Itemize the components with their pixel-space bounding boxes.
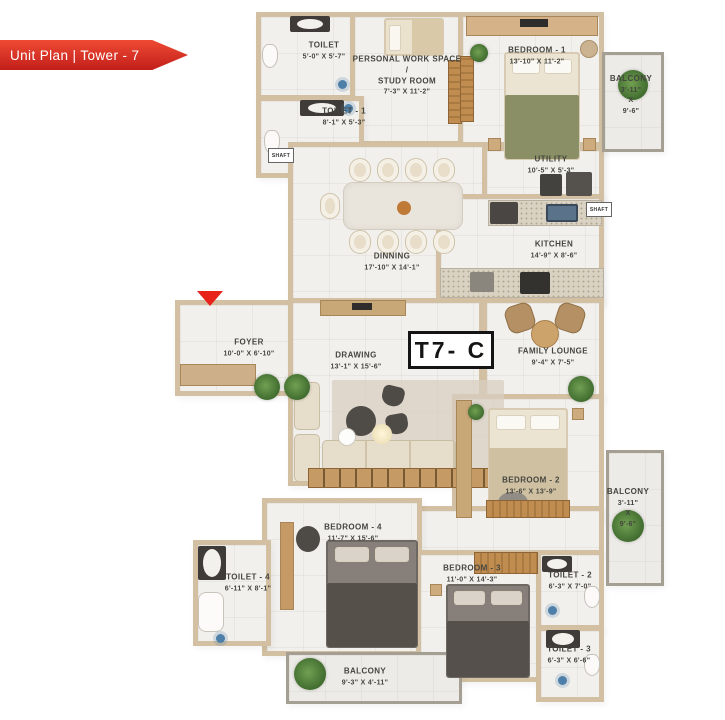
label-bedroom-2: BEDROOM - 2 13'-6" X 13'-9"	[502, 475, 560, 496]
room-name: BALCONY	[607, 487, 649, 498]
bedroom3-bed	[446, 584, 530, 678]
label-kitchen: KITCHEN 14'-9" X 8'-6"	[531, 239, 578, 260]
kitchen-appliance	[470, 272, 494, 292]
dining-chair	[405, 158, 427, 182]
room-dims: 9'-3" X 4'-11"	[342, 678, 388, 687]
dining-chair	[377, 158, 399, 182]
dining-chair	[433, 230, 455, 254]
room-name: TOILET	[303, 40, 346, 51]
plant-icon	[470, 44, 488, 62]
nightstand	[430, 584, 442, 596]
room-name: BEDROOM - 3	[443, 563, 501, 574]
label-drawing: DRAWING 13'-1" X 15'-6"	[330, 350, 381, 371]
room-name: STUDY ROOM	[353, 76, 462, 87]
study-bed-pillow	[389, 25, 401, 51]
pillow	[454, 591, 485, 605]
shower-icon	[216, 634, 225, 643]
room-dims: 14'-9" X 8'-6"	[531, 251, 578, 260]
nightstand	[572, 408, 584, 420]
label-toilet-4: TOILET - 4 6'-11" X 8'-1"	[225, 572, 271, 593]
room-name: TOILET - 3	[547, 644, 591, 655]
plant-icon	[294, 658, 326, 690]
shower-icon	[548, 606, 557, 615]
unit-tag-text: T7- C	[415, 337, 488, 364]
hob-icon	[520, 272, 550, 294]
label-balcony-top: BALCONY 3'-11" X 9'-6"	[610, 74, 652, 116]
tv-icon	[520, 19, 548, 27]
room-dims: 3'-11"	[607, 499, 649, 508]
room-dims: 10'-5" X 5'-3"	[528, 166, 575, 175]
room-dims: 10'-0" X 6'-10"	[223, 349, 274, 358]
room-dims: 8'-1" X 5'-3"	[322, 118, 366, 127]
shower-icon	[558, 676, 567, 685]
bedroom4-chair	[296, 526, 320, 552]
vanity-toilet-4	[198, 546, 226, 580]
bedroom4-console	[280, 522, 294, 610]
room-name: BEDROOM - 4	[324, 522, 382, 533]
shaft-text: SHAFT	[590, 207, 608, 213]
label-study: PERSONAL WORK SPACE / STUDY ROOM 7'-3" X…	[353, 55, 462, 98]
washer-icon	[540, 174, 562, 196]
foyer-console	[180, 364, 256, 386]
bedroom1-wardrobe	[460, 56, 474, 122]
room-dims: X	[607, 509, 649, 518]
vanity-toilet-top	[290, 16, 330, 32]
bedroom3-blanket	[447, 621, 529, 677]
label-utility: UTILITY 10'-5" X 5'-3"	[528, 154, 575, 175]
label-bedroom-4: BEDROOM - 4 11'-7" X 15'-6"	[324, 522, 382, 543]
plant-icon	[468, 404, 484, 420]
label-toilet-1: TOILET - 1 8'-1" X 5'-3"	[322, 106, 366, 127]
title-ribbon: Unit Plan | Tower - 7	[0, 40, 188, 70]
label-bedroom-3: BEDROOM - 3 11'-0" X 14'-3"	[443, 563, 501, 584]
wc-toilet-top	[262, 44, 278, 68]
sink-icon	[546, 204, 578, 222]
plant-icon	[254, 374, 280, 400]
room-name: /	[353, 65, 462, 76]
room-dims: 9'-4" X 7'-5"	[518, 358, 588, 367]
room-name: BEDROOM - 2	[502, 475, 560, 486]
shaft-label-left: SHAFT	[268, 148, 294, 163]
plant-icon	[284, 374, 310, 400]
bedroom4-bed	[326, 540, 418, 648]
room-dims: 6'-3" X 7'-0"	[548, 582, 592, 591]
room-name: TOILET - 4	[225, 572, 271, 583]
label-toilet-2: TOILET - 2 6'-3" X 7'-0"	[548, 570, 592, 591]
lounge-table	[531, 320, 559, 348]
dining-table	[343, 182, 463, 230]
room-name: FOYER	[223, 337, 274, 348]
room-dims: 17'-10" X 14'-1"	[364, 263, 419, 272]
bedroom1-stool	[580, 40, 598, 58]
plan-title: Unit Plan | Tower - 7	[10, 48, 139, 63]
label-toilet-3: TOILET - 3 6'-3" X 6'-6"	[547, 644, 591, 665]
basin-icon	[203, 549, 221, 577]
room-dims: 3'-11"	[610, 86, 652, 95]
bedroom1-blanket	[505, 95, 579, 159]
floor-lamp-icon	[372, 424, 392, 444]
room-name: UTILITY	[528, 154, 575, 165]
nightstand	[488, 138, 501, 151]
shower-icon	[338, 80, 347, 89]
shaft-label-right: SHAFT	[586, 202, 612, 217]
table-centerpiece	[397, 201, 411, 215]
pillow	[335, 547, 369, 562]
pillow	[530, 415, 560, 430]
floor-plan-canvas: Unit Plan | Tower - 7	[0, 0, 725, 720]
room-name: BEDROOM - 1	[508, 45, 566, 56]
study-bed	[384, 18, 444, 56]
cabinet	[490, 202, 518, 224]
bedroom1-bed	[504, 52, 580, 160]
room-dims: 9'-6"	[607, 520, 649, 529]
study-bed-blanket	[412, 19, 443, 55]
room-dims: 6'-3" X 6'-6"	[547, 656, 591, 665]
room-dims: 9'-6"	[610, 107, 652, 116]
pillow	[375, 547, 409, 562]
room-name: DINNING	[364, 251, 419, 262]
pillow	[496, 415, 526, 430]
room-dims: 13'-6" X 13'-9"	[502, 487, 560, 496]
label-balcony-right: BALCONY 3'-11" X 9'-6"	[607, 487, 649, 529]
room-name: DRAWING	[330, 350, 381, 361]
room-dims: 13'-1" X 15'-6"	[330, 362, 381, 371]
side-table	[338, 428, 356, 446]
basin-icon	[552, 633, 574, 645]
room-name: BALCONY	[342, 666, 388, 677]
plant-icon	[568, 376, 594, 402]
room-name: KITCHEN	[531, 239, 578, 250]
room-name: TOILET - 1	[322, 106, 366, 117]
label-family-lounge: FAMILY LOUNGE 9'-4" X 7'-5"	[518, 346, 588, 367]
room-dims: 13'-10" X 11'-2"	[508, 57, 566, 66]
room-dims: 5'-0" X 5'-7"	[303, 52, 346, 61]
basin-icon	[547, 559, 566, 569]
bathtub	[198, 592, 224, 632]
room-dims: 11'-0" X 14'-3"	[443, 575, 501, 584]
room-name: PERSONAL WORK SPACE	[353, 55, 462, 66]
nightstand	[583, 138, 596, 151]
basin-icon	[297, 19, 323, 29]
dining-chair	[320, 193, 340, 219]
room-dims: 11'-7" X 15'-6"	[324, 534, 382, 543]
room-name: FAMILY LOUNGE	[518, 346, 588, 357]
room-name: TOILET - 2	[548, 570, 592, 581]
room-dims: 6'-11" X 8'-1"	[225, 584, 271, 593]
room-dims: X	[610, 96, 652, 105]
tv-icon	[352, 303, 372, 310]
label-foyer: FOYER 10'-0" X 6'-10"	[223, 337, 274, 358]
label-dining: DINNING 17'-10" X 14'-1"	[364, 251, 419, 272]
room-dims: 7'-3" X 11'-2"	[353, 88, 462, 97]
shaft-text: SHAFT	[272, 153, 290, 159]
label-balcony-bottom: BALCONY 9'-3" X 4'-11"	[342, 666, 388, 687]
dining-chair	[433, 158, 455, 182]
bedroom2-wardrobe	[486, 500, 570, 518]
unit-tag: T7- C	[408, 331, 494, 369]
bedroom4-blanket	[327, 583, 417, 647]
dining-chair	[349, 158, 371, 182]
label-bedroom-1: BEDROOM - 1 13'-10" X 11'-2"	[508, 45, 566, 66]
label-toilet-top: TOILET 5'-0" X 5'-7"	[303, 40, 346, 61]
pillow	[491, 591, 522, 605]
room-name: BALCONY	[610, 74, 652, 85]
